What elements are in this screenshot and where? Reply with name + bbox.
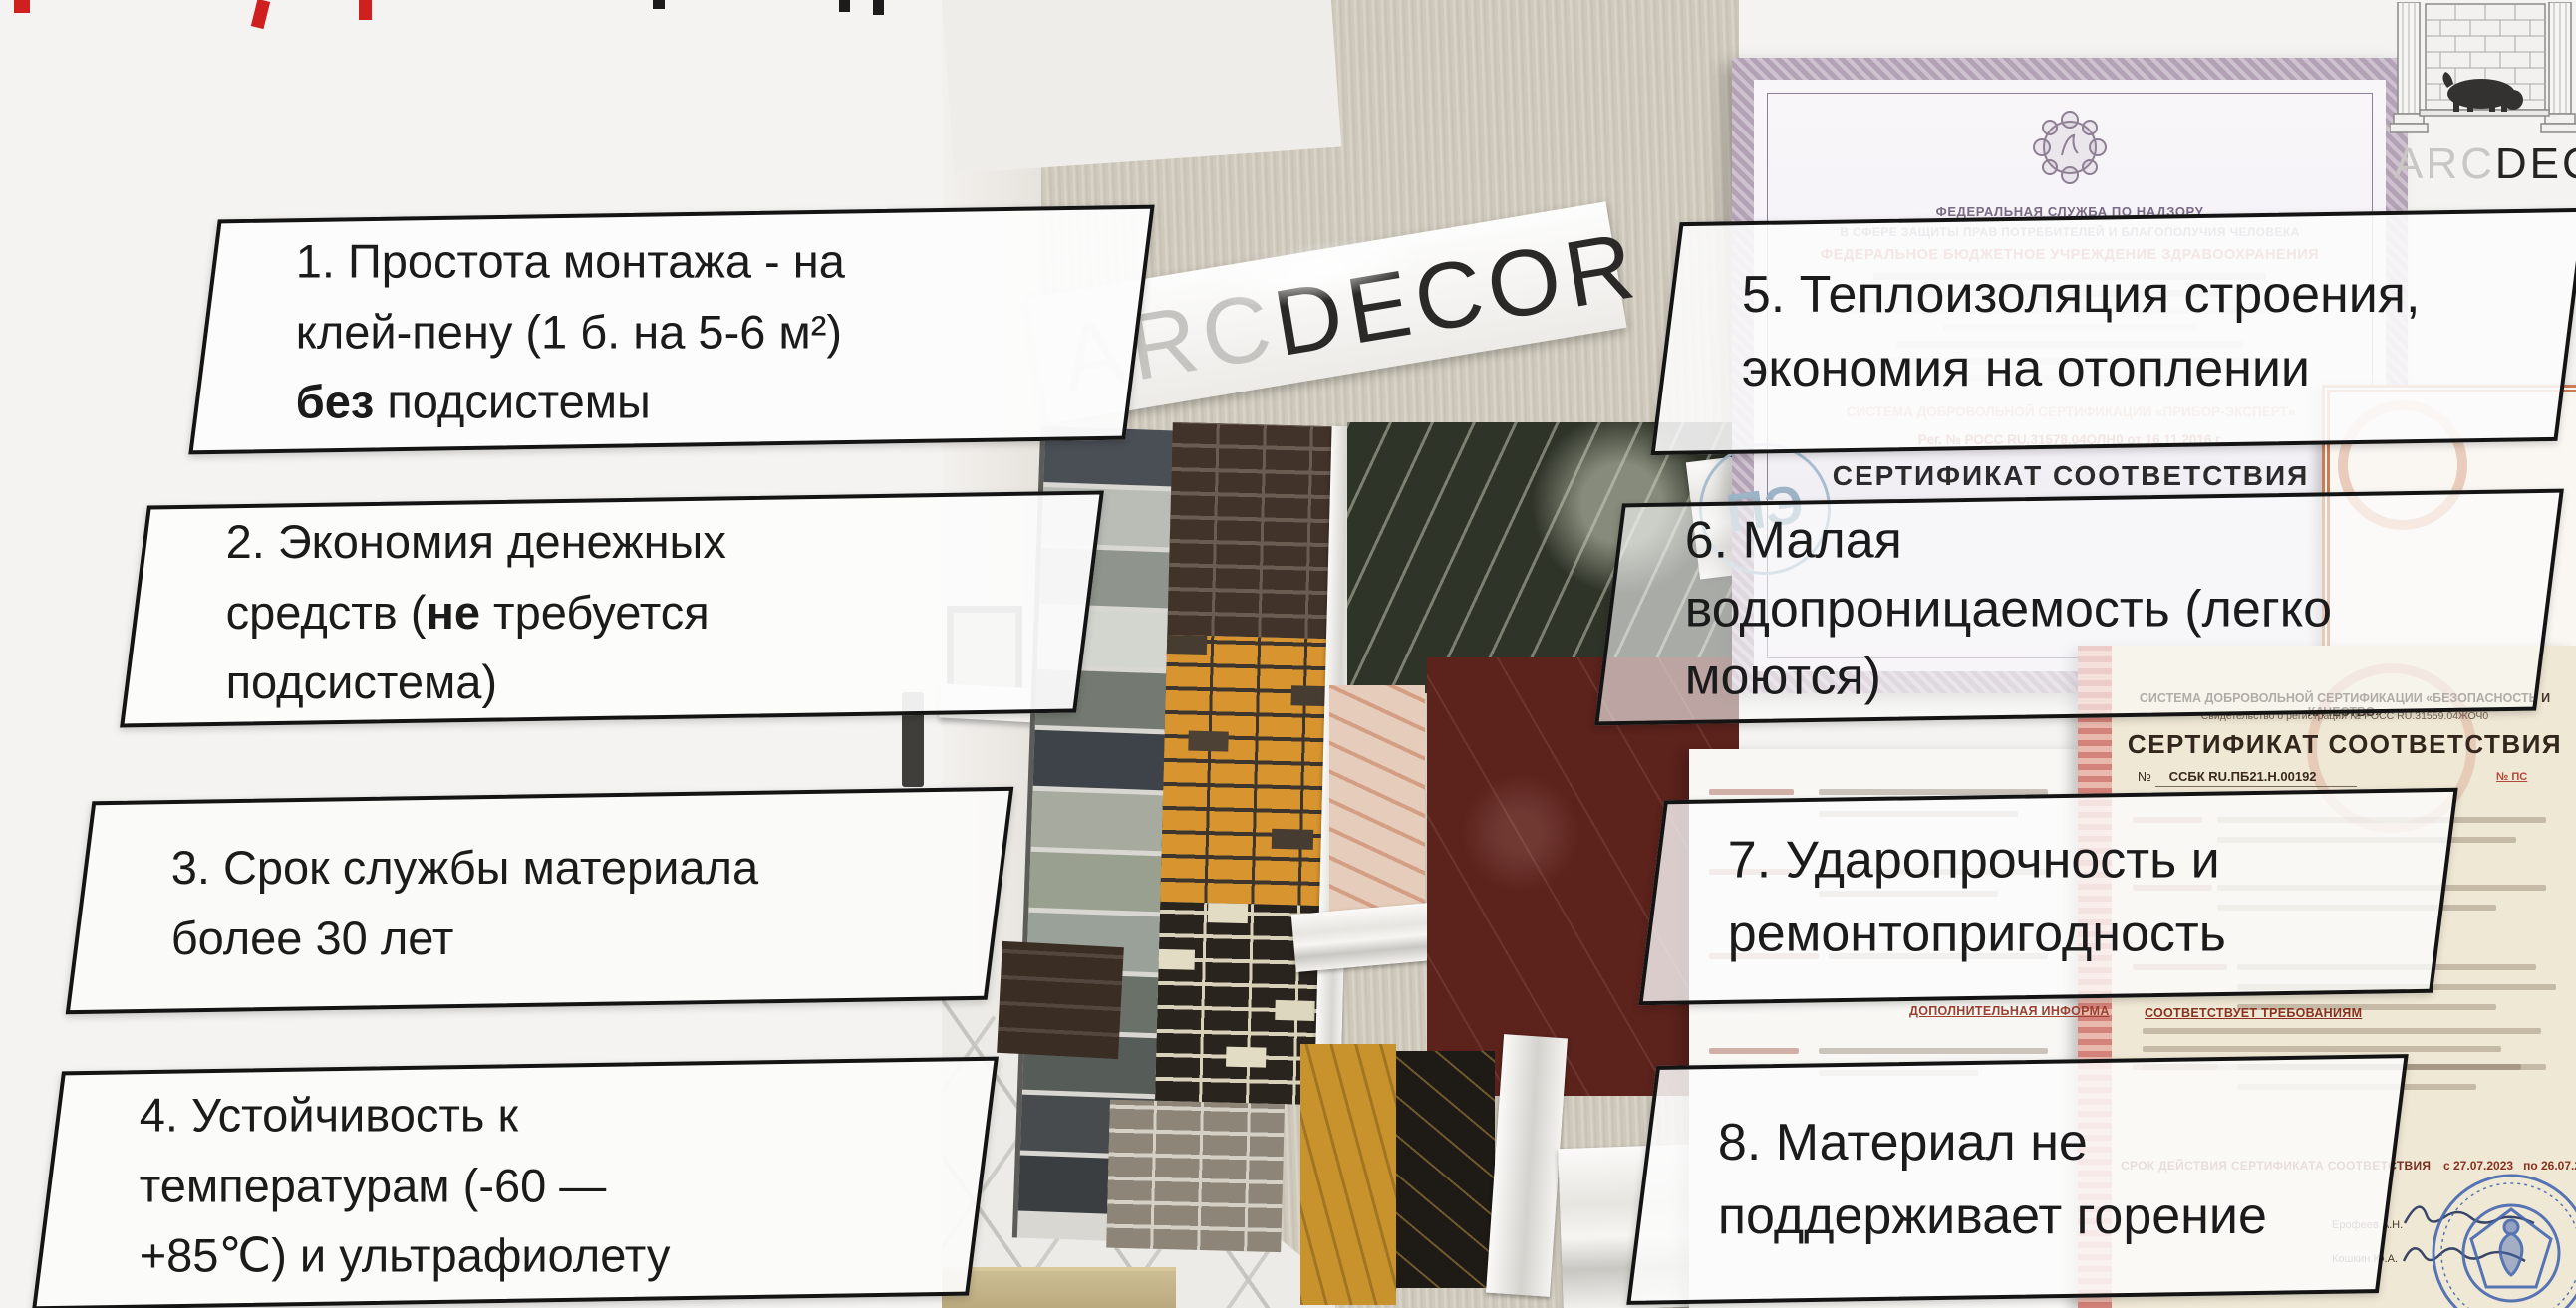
display-base-dark [997,941,1124,1059]
sill-molding [1291,903,1436,972]
brick-orange [1160,635,1328,906]
agency-emblem [2032,110,2108,185]
sq-no-label: № [2138,769,2151,784]
baseboard [942,1267,1176,1308]
sq-number: ССБК RU.ПБ21.Н.00192 [2155,769,2357,787]
benefit-box-3: 3. Срок службы материала более 30 лет [66,787,1014,1014]
sq-cert-title: СЕРТИФИКАТ СООТВЕТСТВИЯ [2121,729,2569,760]
benefit-box-8: 8. Материал не поддерживает горение [1626,1054,2409,1305]
showroom-ceiling [942,0,1341,174]
benefit-box-1: 1. Простота монтажа - на клей-пену (1 б.… [188,205,1154,455]
benefit-box-7: 7. Ударопрочность и ремонтопригодность [1638,788,2457,1005]
arcdecor-logo-text: ARCDECOR [2394,139,2576,189]
logo-text-arc: ARC [2394,139,2495,188]
sq-number-row: № ССБК RU.ПБ21.Н.00192 [2138,769,2357,784]
slide: ARCDECOR [0,0,2576,1308]
marble-black-gold [1391,1051,1495,1288]
benefit-box-2: 2. Экономия денежных средств (не требует… [120,490,1104,727]
sq-ps-number: № ПС [2496,771,2527,783]
pribor-cert-title: СЕРТИФИКАТ СООТВЕТСТВИЯ [1772,460,2370,492]
marble-ochre [1300,1044,1396,1305]
blue-round-stamp [2417,1164,2576,1308]
meets-requirements-label: СООТВЕТСТВУЕТ ТРЕБОВАНИЯМ [2145,1006,2362,1020]
benefit-box-5: 5. Теплоизоляция строения, экономия на о… [1650,208,2576,455]
marble-pink [1329,685,1425,916]
additional-info-label: ДОПОЛНИТЕЛЬНАЯ ИНФОРМА [1909,1004,2110,1018]
logo-text-decor: DECOR [2495,139,2576,188]
brick-dark-brown [1167,422,1334,639]
benefit-box-6: 6. Малая водопроницаемость (легко моются… [1594,489,2564,726]
brick-taupe [1106,1100,1285,1253]
arcdecor-logo-emblem [2390,2,2576,149]
benefit-box-4: 4. Устойчивость к температурам (-60 — +8… [32,1057,999,1308]
